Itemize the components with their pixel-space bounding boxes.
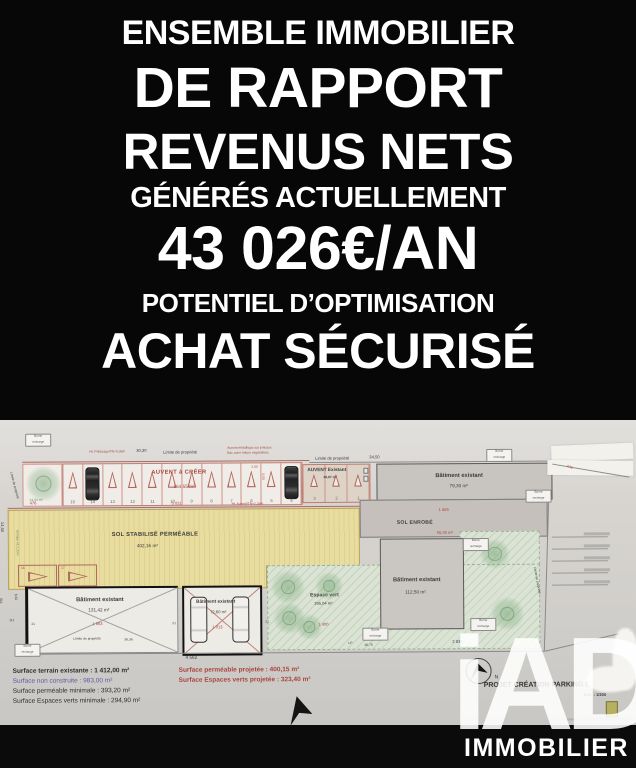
wall-thickness: 21 (31, 623, 35, 626)
parking-stall: 5 (262, 463, 282, 504)
dim-4562: 4 562 (186, 656, 198, 661)
leader-label (584, 568, 610, 571)
tree-cell: 24,04 m² (22, 464, 62, 507)
building-left: Bâtiment existant 131,42 m² 1 663 21 21 (25, 586, 178, 654)
sol-enrobe-area: 55,50 m² (437, 531, 453, 535)
dim-36-75: 36,75 (364, 644, 372, 647)
stall-number: 12 (130, 500, 135, 504)
sol-enrobe-label: SOL ENROBÉ (397, 520, 433, 525)
meter-box-icon (363, 476, 368, 482)
leader-label (584, 544, 610, 547)
listing-image: ENSEMBLE IMMOBILIER DE RAPPORT REVENUS N… (0, 0, 636, 768)
stall-marker-icon (354, 474, 362, 487)
building-top-label: Bâtiment existant (435, 473, 483, 479)
dim-5021: 5 021 (172, 502, 182, 506)
recharge-tag: Bornerecharge (14, 644, 40, 657)
parking-stall-16: 16 (18, 565, 57, 587)
iad-watermark-logo: iAD (451, 618, 636, 750)
stall-number: 14 (90, 500, 95, 504)
carport-new-area: 164,55 m² (173, 485, 194, 490)
leader-line (552, 572, 608, 573)
parking-stall: 12 (123, 464, 143, 505)
stall-marker-icon (227, 470, 236, 487)
parking-stall: 14 (83, 464, 103, 505)
building-mid: Bâtiment existant 72,60 m² 1 013 (182, 585, 262, 655)
legend-non-construite: Surface non construite : 983,00 m² (13, 678, 113, 685)
parking-stall: 7 (222, 463, 242, 504)
legend-espaces-verts-proj: Surface Espaces verts projetée : 323,40 … (179, 677, 311, 684)
stall-arrow-icon (28, 572, 48, 582)
hero-line-7: ACHAT SÉCURISÉ (0, 326, 636, 376)
north-arrow-icon (284, 694, 314, 726)
stall-arrow-icon (68, 571, 88, 581)
stall-number: 2 (335, 497, 337, 501)
carport-existing-area: 38,97 m² (323, 476, 336, 479)
building-mid-area: 72,60 m² (210, 611, 226, 615)
car-icon (284, 466, 298, 499)
building-right-label: Bâtiment existant (393, 577, 441, 583)
wall-thickness: 21 (265, 620, 269, 623)
limite-propriete-bottom: Limite de propriété (73, 637, 100, 640)
sci-label: SCI (0, 598, 2, 604)
stall-marker-icon (108, 471, 117, 488)
leader-label (584, 532, 610, 535)
stall-marker-icon (128, 471, 137, 488)
tree-icon (25, 466, 61, 502)
hero-line-2: DE RAPPORT (0, 60, 636, 117)
parking-stall: 13 (103, 464, 123, 505)
wall-thickness: 21 (172, 622, 176, 625)
parking-stall: 6 (242, 463, 262, 504)
leader-line (552, 584, 608, 585)
dim-30-30: 30,30 (136, 449, 146, 453)
tree-icon (271, 570, 305, 604)
carport-existing-title: AUVENT Existant (307, 468, 346, 473)
meter-box-icon (363, 468, 368, 474)
building-top-area: 79,30 m² (449, 484, 468, 489)
legend-espaces-verts-min: Surface Espaces verts minimale : 294,90 … (13, 698, 141, 705)
espace-vert-area: 295,04 m² (314, 602, 332, 606)
building-mid-label: Bâtiment existant (196, 600, 235, 605)
building-left-label: Bâtiment existant (76, 597, 124, 603)
tree-icon (315, 572, 343, 600)
tree-icon (296, 614, 322, 640)
stall-number: 17 (61, 567, 65, 570)
building-mid-dim: 1 013 (212, 626, 222, 630)
stall-number: 8 (211, 500, 213, 504)
dim-36-36: 36,36 (124, 638, 132, 641)
leader-label (584, 580, 610, 583)
leader-line (552, 536, 608, 537)
recharge-tag: Bornerecharge (486, 449, 512, 462)
leader-label (584, 556, 610, 559)
carport-new: 15 14 13 12 11 10 9 8 7 6 5 4 AUVENT à C… (62, 462, 302, 506)
stall-number: 11 (150, 500, 154, 504)
hero-line-6: POTENTIEL D’OPTIMISATION (0, 290, 636, 316)
stall-marker-icon (267, 470, 276, 487)
stall-number: 13 (110, 500, 115, 504)
permeable-zone: SOL STABILISÉ PERMÉABLE 402,16 m² (8, 508, 360, 567)
building-right-area: 112,50 m² (405, 590, 426, 595)
dim-14-50: 14,50 (0, 522, 4, 532)
stall-number: 16 (21, 567, 25, 570)
stall-number: 9 (191, 500, 193, 504)
parking-stall: 4 (281, 463, 301, 504)
carport-existing: 3 2 1 AUVENT Existant 38,97 m² (302, 464, 370, 503)
hero-revenue-amount: 43 026€/AN (0, 218, 636, 279)
stall-number: 5 (270, 499, 272, 503)
sol-stabilise-area: 402,16 m² (137, 544, 158, 549)
legend-permeable-min: Surface perméable minimale : 393,20 m² (13, 688, 130, 695)
auvent-note-2: Bac acier toiture végétalisée (227, 451, 268, 455)
parking-stall: 15 (63, 464, 83, 505)
leader-line (552, 560, 608, 561)
hero-line-1: ENSEMBLE IMMOBILIER (0, 16, 636, 50)
tick-111: 111 (9, 619, 14, 622)
hero-line-3: REVENUS NETS (0, 126, 636, 177)
car-icon (86, 467, 100, 500)
hero-line-4: GÉNÉRÉS ACTUELLEMENT (0, 184, 636, 213)
limite-propriete-top-right: Limite de propriété (315, 457, 349, 461)
auvent-note-1: Auvent métallique sur poteaux (227, 446, 271, 450)
grillage-note: Grillage Ht.2,00m (15, 530, 18, 556)
stall-number: 3 (313, 497, 315, 501)
dim-476: 476 (30, 502, 37, 506)
leader-line (552, 548, 608, 549)
stall-marker-icon (310, 474, 318, 487)
recharge-tag: Bornerecharge (463, 538, 489, 551)
stall-number: 15 (71, 500, 76, 504)
stall-marker-icon (207, 471, 216, 488)
auvent-height-note: Ht. Auvent/TN=2,26m (232, 502, 264, 505)
recharge-tag: Bornerecharge (362, 628, 388, 641)
palissade-note: Ht. Palissage/TN=0,26m (89, 450, 125, 454)
sol-enrobe-dim: 1 885 (439, 508, 449, 512)
legend-terrain: Surface terrain existante : 1 412,00 m² (13, 668, 130, 675)
legend-permeable-proj: Surface perméable projetée : 400,15 m² (179, 667, 300, 674)
stall-width-dim: 2,50 (251, 465, 257, 468)
dim-8-62: 8,62 (14, 594, 17, 600)
stall-marker-icon (247, 470, 256, 487)
tape-patch (547, 460, 633, 476)
recharge-tag: Bornerecharge (25, 434, 51, 447)
stall-depth-dim: 5,00 (261, 473, 264, 479)
stall-number: 4 (290, 499, 292, 503)
sol-stabilise-label: SOL STABILISÉ PERMÉABLE (112, 532, 199, 538)
building-left-dim: 1 663 (92, 622, 102, 626)
stall-marker-icon (68, 471, 77, 488)
recharge-tag: Bornerecharge (525, 490, 551, 503)
dim-lp: LP (348, 642, 352, 645)
building-left-area: 131,42 m² (88, 608, 109, 613)
dim-34-50: 34,50 (369, 456, 379, 460)
hero-banner: ENSEMBLE IMMOBILIER DE RAPPORT REVENUS N… (0, 0, 636, 420)
parking-stall-17: 17 (58, 564, 97, 586)
limite-propriete-left: Limite de propriété (9, 472, 19, 499)
limite-propriete-top: Limite de propriété (163, 451, 197, 455)
carport-new-title: AUVENT à CRÉER (151, 470, 206, 476)
